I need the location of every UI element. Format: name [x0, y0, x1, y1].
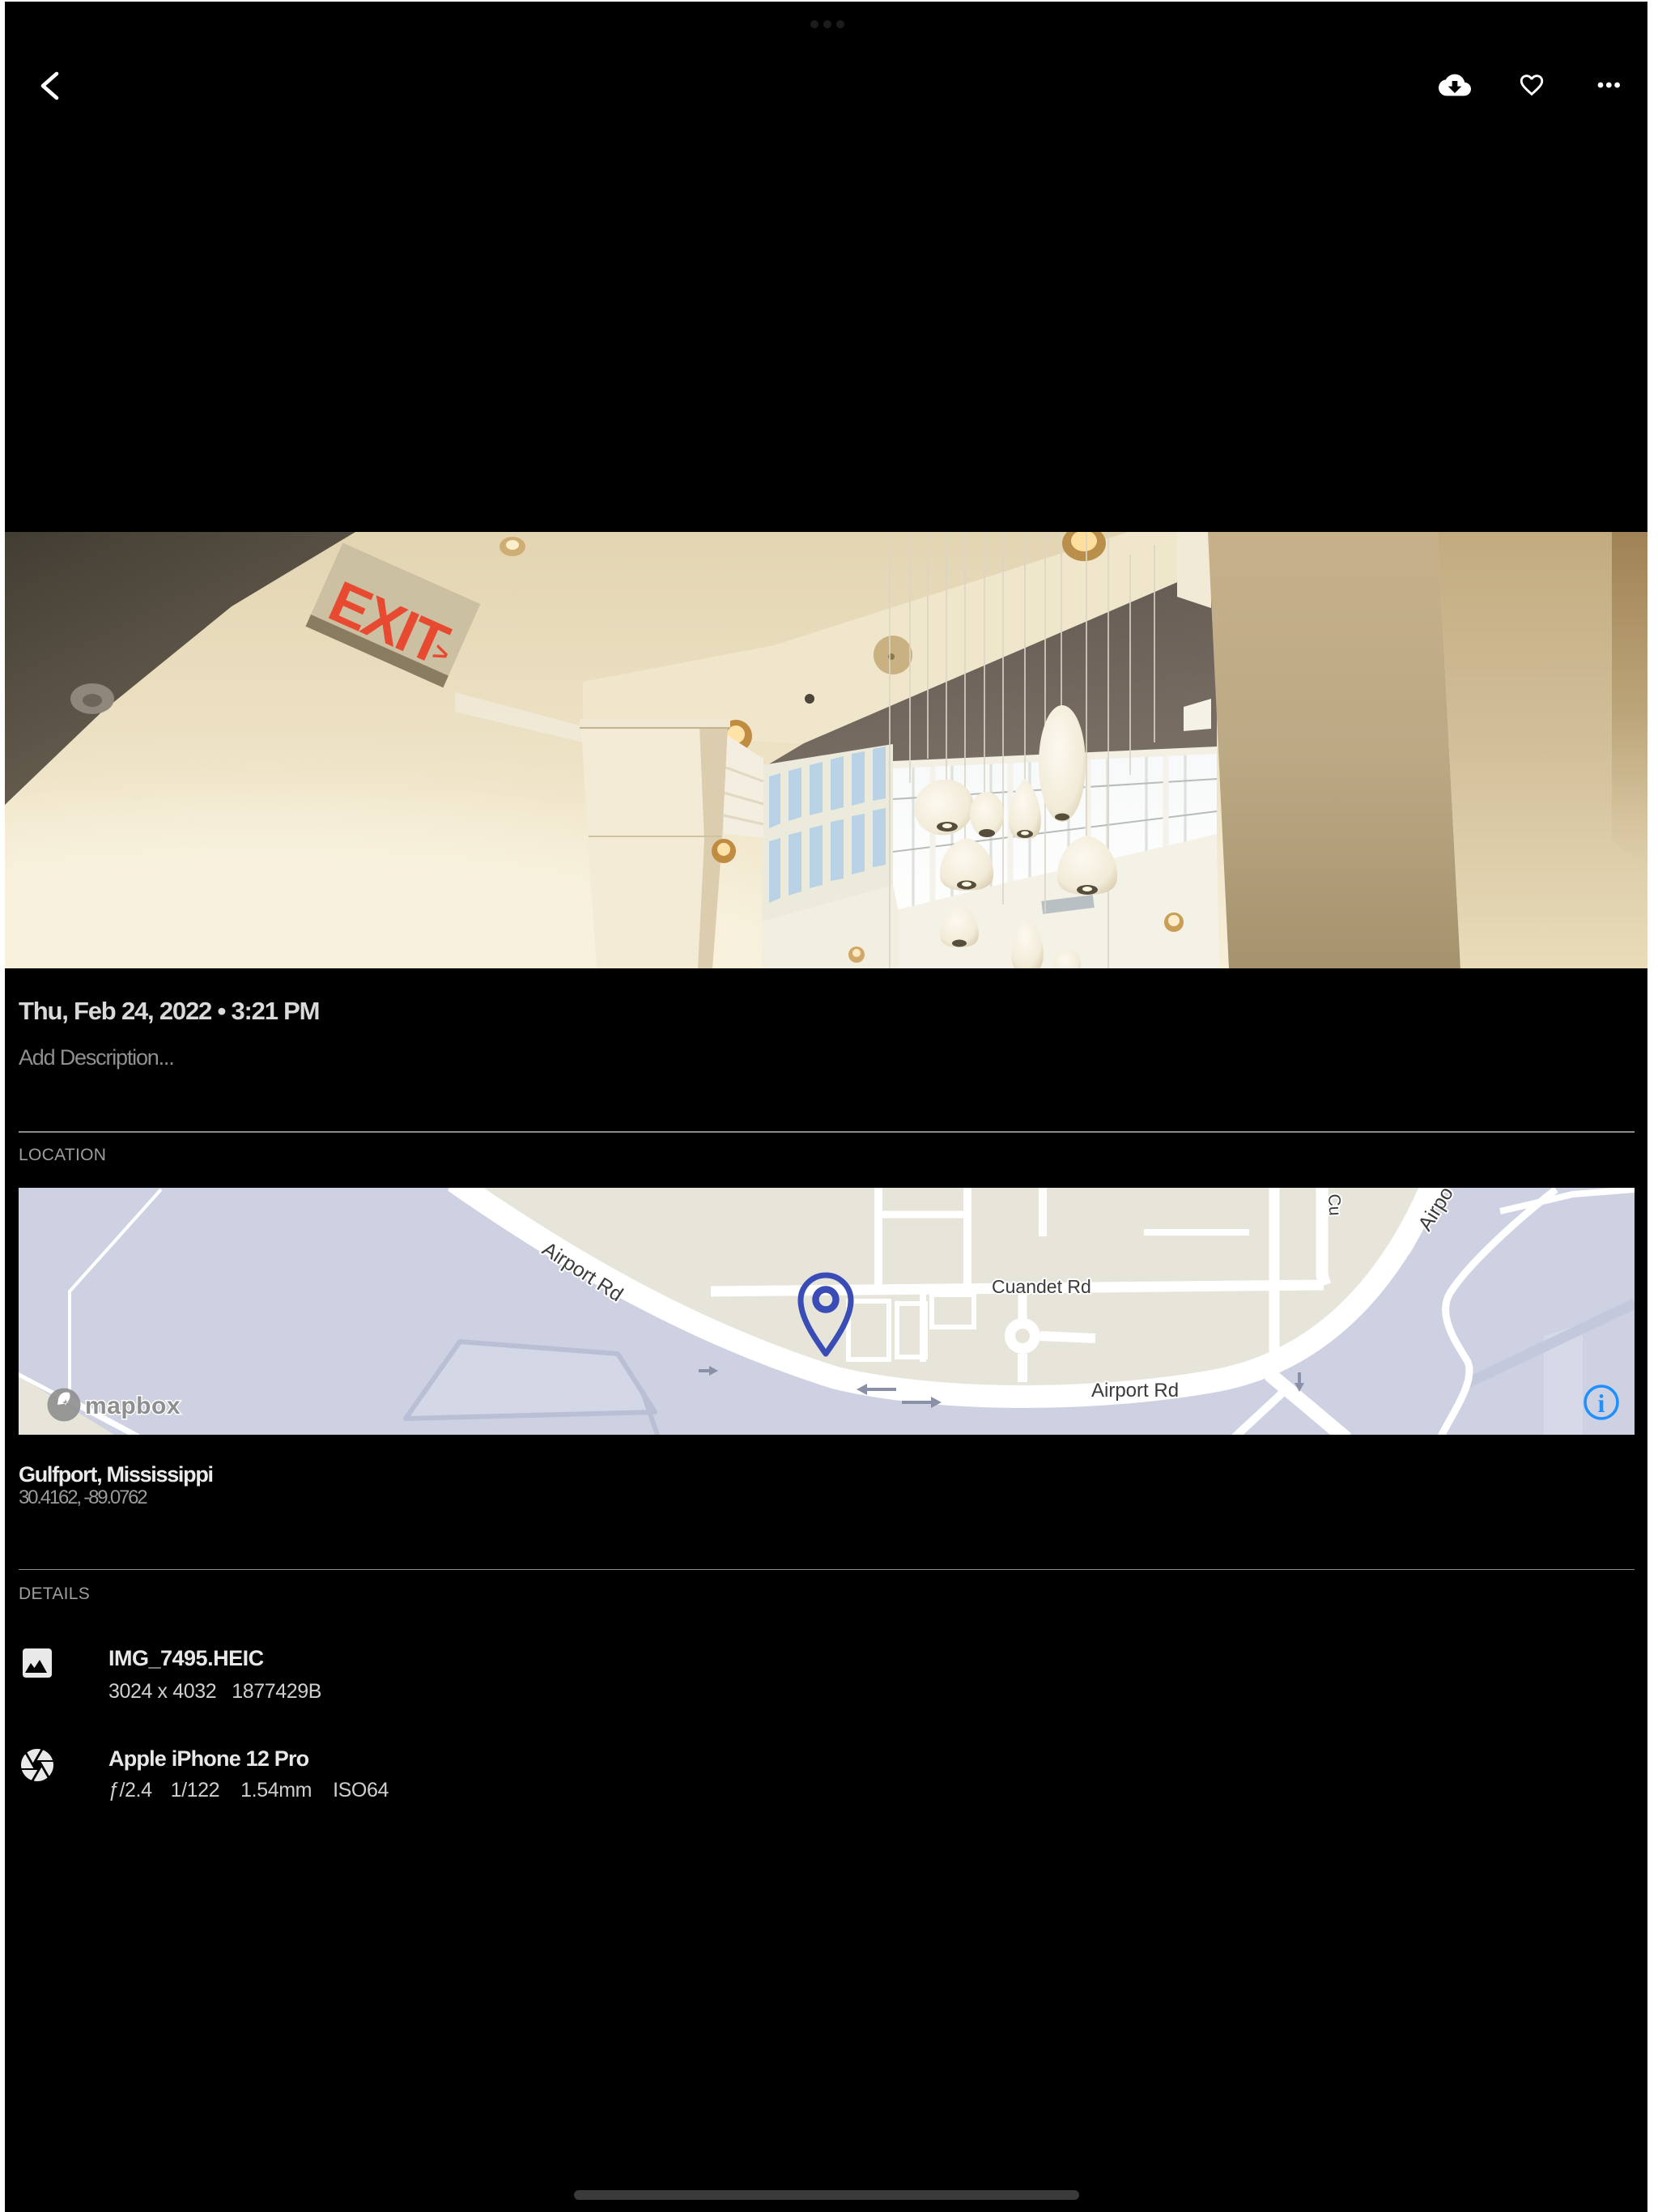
svg-text:i: i: [1598, 1389, 1605, 1418]
svg-text:Cuandet Rd: Cuandet Rd: [992, 1276, 1091, 1297]
svg-text:mapbox: mapbox: [85, 1393, 181, 1419]
svg-text:Airport Rd: Airport Rd: [1091, 1380, 1179, 1402]
svg-text:Cu: Cu: [1324, 1193, 1344, 1216]
